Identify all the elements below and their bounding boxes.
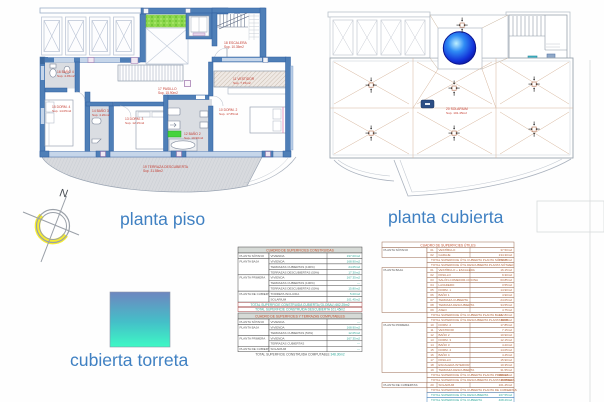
svg-text:101.45m2: 101.45m2 (347, 298, 361, 302)
svg-text:15.80m2: 15.80m2 (348, 287, 360, 291)
svg-text:TOTAL SUPERFICIE ÚTIL CUBIERTA: TOTAL SUPERFICIE ÚTIL CUBIERTA PLANTA SÓ… (431, 257, 508, 262)
svg-text:408.29m2: 408.29m2 (499, 398, 513, 402)
svg-text:24.05m2: 24.05m2 (348, 265, 360, 269)
svg-text:08: 08 (430, 303, 434, 307)
svg-text:13: 13 (430, 338, 434, 342)
svg-text:01: 01 (430, 268, 434, 272)
svg-text:Sup. 10.90m2: Sup. 10.90m2 (184, 136, 204, 140)
svg-text:34.55m2: 34.55m2 (500, 318, 512, 322)
svg-text:24.05m2: 24.05m2 (500, 298, 512, 302)
svg-text:TOTAL SUPERFICIE ÚTIL CUBIERTA: TOTAL SUPERFICIE ÚTIL CUBIERTA (431, 397, 482, 402)
svg-text:168.90m2: 168.90m2 (347, 259, 361, 263)
svg-text:PLANTA DE CUBIERTAS: PLANTA DE CUBIERTAS (240, 347, 274, 351)
svg-text:7.15m2: 7.15m2 (502, 328, 512, 332)
svg-text:TERRAZA DESCUBIERTA: TERRAZA DESCUBIERTA (439, 303, 475, 307)
svg-text:16: 16 (430, 353, 434, 357)
svg-text:Sup. 12.15m2: Sup. 12.15m2 (125, 121, 145, 125)
svg-text:TOTAL SUPERFICIE ÚTIL DESCUBIE: TOTAL SUPERFICIE ÚTIL DESCUBIERTA (431, 392, 488, 397)
svg-text:TERRAZAS CUBIERTAS (100%): TERRAZAS CUBIERTAS (100%) (271, 281, 315, 285)
svg-text:PLANTA PRIMERA: PLANTA PRIMERA (384, 323, 410, 327)
svg-text:VESTIDOR: VESTIDOR (439, 328, 455, 332)
svg-text:09: 09 (430, 308, 434, 312)
svg-text:4.20m2: 4.20m2 (502, 343, 512, 347)
svg-text:TERRAZA CUBIERTA: TERRAZA CUBIERTA (439, 298, 469, 302)
svg-text:SOLARIUM: SOLARIUM (271, 347, 287, 351)
svg-text:DORM. 1: DORM. 1 (439, 288, 452, 292)
svg-text:10.90m2: 10.90m2 (500, 333, 512, 337)
svg-text:SOLARIUM: SOLARIUM (439, 383, 455, 387)
svg-text:SALÓN-COMEDOR-COCINA: SALÓN-COMEDOR-COCINA (439, 277, 479, 282)
svg-text:167.35m2: 167.35m2 (347, 276, 361, 280)
svg-text:18: 18 (430, 363, 434, 367)
svg-text:06: 06 (430, 293, 434, 297)
svg-text:----: ---- (508, 388, 512, 392)
svg-text:TERRAZAS CUBIERTAS (100%): TERRAZAS CUBIERTAS (100%) (271, 265, 315, 269)
svg-text:Sup. 101.45m2: Sup. 101.45m2 (446, 111, 467, 115)
svg-text:TERRAZAS CUBIERTAS (50%): TERRAZAS CUBIERTAS (50%) (271, 331, 314, 335)
svg-text:11: 11 (430, 328, 433, 332)
svg-text:planta piso: planta piso (120, 209, 205, 229)
svg-text:ESCALERA INTERIOR: ESCALERA INTERIOR (439, 363, 471, 367)
svg-text:142.80m2: 142.80m2 (499, 313, 513, 317)
svg-text:PLANTA SÓTANO: PLANTA SÓTANO (240, 253, 265, 258)
svg-text:Sup. 7.15m2: Sup. 7.15m2 (233, 81, 251, 85)
svg-text:63.85m2: 63.85m2 (500, 278, 512, 282)
svg-text:TORRETA INCLUIDA: TORRETA INCLUIDA (271, 292, 300, 296)
svg-text:4.75m2: 4.75m2 (502, 308, 512, 312)
svg-text:TOTAL SUPERFICIE ÚTIL CUBIERTA: TOTAL SUPERFICIE ÚTIL CUBIERTA PLANTA PR… (431, 372, 509, 377)
svg-text:02: 02 (430, 273, 434, 277)
svg-text:101.45m2: 101.45m2 (499, 383, 513, 387)
svg-text:VIVIENDA: VIVIENDA (271, 336, 285, 340)
svg-text:cubierta torreta: cubierta torreta (70, 350, 189, 370)
svg-text:07: 07 (430, 298, 434, 302)
svg-text:17.30m2: 17.30m2 (348, 270, 360, 274)
svg-text:BAÑO 1: BAÑO 1 (439, 292, 450, 297)
svg-text:37.50m2: 37.50m2 (500, 248, 512, 252)
svg-text:VESTÍBULO: VESTÍBULO (439, 248, 457, 252)
svg-text:planta cubierta: planta cubierta (388, 207, 504, 227)
svg-text:PLANTA BAJA: PLANTA BAJA (384, 268, 404, 272)
svg-text:VESTÍBULO + ESCALERA: VESTÍBULO + ESCALERA (439, 268, 475, 272)
svg-text:DORM. 4: DORM. 4 (439, 348, 452, 352)
svg-text:PASILLO: PASILLO (439, 273, 452, 277)
svg-text:Sup. 14.05m2: Sup. 14.05m2 (52, 109, 72, 113)
svg-text:31.55m2: 31.55m2 (500, 368, 512, 372)
svg-text:17.85m2: 17.85m2 (500, 323, 512, 327)
svg-text:31.55m2: 31.55m2 (500, 378, 512, 382)
svg-text:SOLARIUM: SOLARIUM (271, 298, 287, 302)
svg-text:14: 14 (430, 343, 434, 347)
svg-text:---: --- (357, 342, 360, 346)
svg-text:02: 02 (430, 253, 434, 257)
svg-text:16.15m2: 16.15m2 (500, 268, 512, 272)
svg-text:PLANTA PRIMERA: PLANTA PRIMERA (240, 336, 266, 340)
svg-text:17: 17 (430, 358, 434, 362)
svg-text:VIVIENDA: VIVIENDA (271, 276, 285, 280)
svg-text:171.75m2: 171.75m2 (499, 258, 513, 262)
svg-text:Sup. 17.85m2: Sup. 17.85m2 (219, 112, 239, 116)
svg-text:20: 20 (430, 383, 434, 387)
svg-text:03: 03 (430, 278, 434, 282)
svg-text:167.55m2: 167.55m2 (499, 393, 513, 397)
svg-text:01: 01 (430, 248, 434, 252)
svg-text:PLANTA SÓTANO: PLANTA SÓTANO (240, 319, 265, 324)
svg-text:TOTAL SUPERFICIE CONSTRUIDA DE: TOTAL SUPERFICIE CONSTRUIDA DESCUBIERTA … (255, 308, 345, 312)
svg-text:10.35m2: 10.35m2 (500, 363, 512, 367)
svg-text:107.14m2: 107.14m2 (499, 373, 513, 377)
svg-text:TERRAZAS DESCUBIERTAS (50%): TERRAZAS DESCUBIERTAS (50%) (271, 270, 320, 274)
svg-text:04: 04 (430, 283, 434, 287)
svg-text:VIVIENDA: VIVIENDA (271, 254, 285, 258)
svg-text:TOTAL SUPERFICIE CONSTRUIDA CU: TOTAL SUPERFICIE CONSTRUIDA CUBIERTA (GL… (250, 303, 349, 307)
svg-text:ASEO: ASEO (439, 308, 448, 312)
svg-text:PLANTA PRIMERA: PLANTA PRIMERA (240, 276, 266, 280)
svg-text:TOTAL SUPERFICIE CONSTRUIDA CO: TOTAL SUPERFICIE CONSTRUIDA COMPUTABLE 3… (255, 353, 345, 357)
svg-text:167.35m2: 167.35m2 (347, 336, 361, 340)
svg-text:PLANTA BAJA: PLANTA BAJA (240, 259, 260, 263)
svg-text:----: ---- (508, 263, 512, 267)
svg-text:BAÑO 3: BAÑO 3 (439, 342, 450, 347)
svg-text:TOTAL SUPERFICIE ÚTIL DESCUBIE: TOTAL SUPERFICIE ÚTIL DESCUBIERTA PLANTA… (431, 262, 514, 267)
svg-text:134.30m2: 134.30m2 (499, 253, 513, 257)
svg-text:DORM. 3: DORM. 3 (439, 338, 452, 342)
svg-text:TERRAZA DESCUBIERTA: TERRAZA DESCUBIERTA (439, 368, 475, 372)
svg-text:12.05m2: 12.05m2 (348, 331, 360, 335)
svg-text:TOTAL SUPERFICIE ÚTIL CUBIERTA: TOTAL SUPERFICIE ÚTIL CUBIERTA PLANTA BA… (431, 312, 502, 317)
svg-text:4.90m2: 4.90m2 (502, 293, 512, 297)
svg-text:TOTAL SUPERFICIE ÚTIL CUBIERTA: TOTAL SUPERFICIE ÚTIL CUBIERTA PLANTA DE… (431, 387, 517, 392)
svg-text:PASILLO: PASILLO (439, 358, 452, 362)
svg-text:10: 10 (430, 323, 434, 327)
svg-text:14.90m2: 14.90m2 (500, 288, 512, 292)
svg-text:34.55m2: 34.55m2 (500, 303, 512, 307)
svg-text:VIVIENDA: VIVIENDA (271, 320, 285, 324)
svg-text:5.00m2: 5.00m2 (350, 292, 360, 296)
svg-text:LAVADERO: LAVADERO (439, 283, 456, 287)
svg-text:BAÑO 2: BAÑO 2 (439, 332, 450, 337)
svg-text:CUADRO DE SUPERFICIES CONSTRUI: CUADRO DE SUPERFICIES CONSTRUIDAS (266, 248, 334, 252)
svg-text:CUADRO DE SUPERFICIES ÚTILES: CUADRO DE SUPERFICIES ÚTILES (420, 243, 476, 247)
svg-text:12: 12 (430, 333, 434, 337)
svg-text:PLANTA DE CUBIERTAS: PLANTA DE CUBIERTAS (240, 292, 274, 296)
svg-text:TOTAL SUPERFICIE ÚTIL DESCUBIE: TOTAL SUPERFICIE ÚTIL DESCUBIERTA PLANTA… (431, 317, 509, 322)
svg-text:PLANTA SÓTANO: PLANTA SÓTANO (384, 247, 409, 252)
svg-text:4.45m2: 4.45m2 (502, 353, 512, 357)
svg-text:9.30m2: 9.30m2 (502, 273, 512, 277)
svg-text:GARAJE: GARAJE (439, 253, 451, 257)
svg-text:19: 19 (430, 368, 434, 372)
svg-text:CUADRO DE SUPERFICIES Y TERRAZ: CUADRO DE SUPERFICIES Y TERRAZAS COMPUTA… (255, 314, 346, 318)
svg-text:VIVIENDA: VIVIENDA (271, 259, 285, 263)
svg-text:14.05m2: 14.05m2 (500, 348, 512, 352)
svg-text:Sup. 4.20m2: Sup. 4.20m2 (92, 113, 110, 117)
svg-text:3.55m2: 3.55m2 (502, 283, 512, 287)
svg-text:VIVIENDA: VIVIENDA (271, 325, 285, 329)
svg-text:168.90m2: 168.90m2 (347, 325, 361, 329)
svg-text:---: --- (357, 347, 360, 351)
svg-text:Sup. 4.45m2: Sup. 4.45m2 (57, 74, 75, 78)
svg-text:DORM. 2: DORM. 2 (439, 323, 452, 327)
svg-text:PLANTA DE CUBIERTAS: PLANTA DE CUBIERTAS (384, 383, 418, 387)
svg-text:PLANTA BAJA: PLANTA BAJA (240, 325, 260, 329)
svg-text:15: 15 (430, 348, 434, 352)
svg-text:12.15m2: 12.15m2 (500, 338, 512, 342)
svg-text:05: 05 (430, 288, 434, 292)
svg-text:Sup. 31.55m2: Sup. 31.55m2 (143, 169, 163, 173)
svg-text:BAÑO 4: BAÑO 4 (439, 352, 450, 357)
svg-text:Sup. 15.90m2: Sup. 15.90m2 (158, 91, 178, 95)
svg-text:TERRAZAS DESCUBIERTAS (50%): TERRAZAS DESCUBIERTAS (50%) (271, 287, 320, 291)
svg-text:15.90m2: 15.90m2 (500, 358, 512, 362)
svg-text:---: --- (357, 320, 360, 324)
svg-text:---: --- (357, 281, 360, 285)
svg-text:197.00m2: 197.00m2 (347, 254, 361, 258)
svg-text:TERRAZAS CUBIERTAS: TERRAZAS CUBIERTAS (271, 342, 305, 346)
